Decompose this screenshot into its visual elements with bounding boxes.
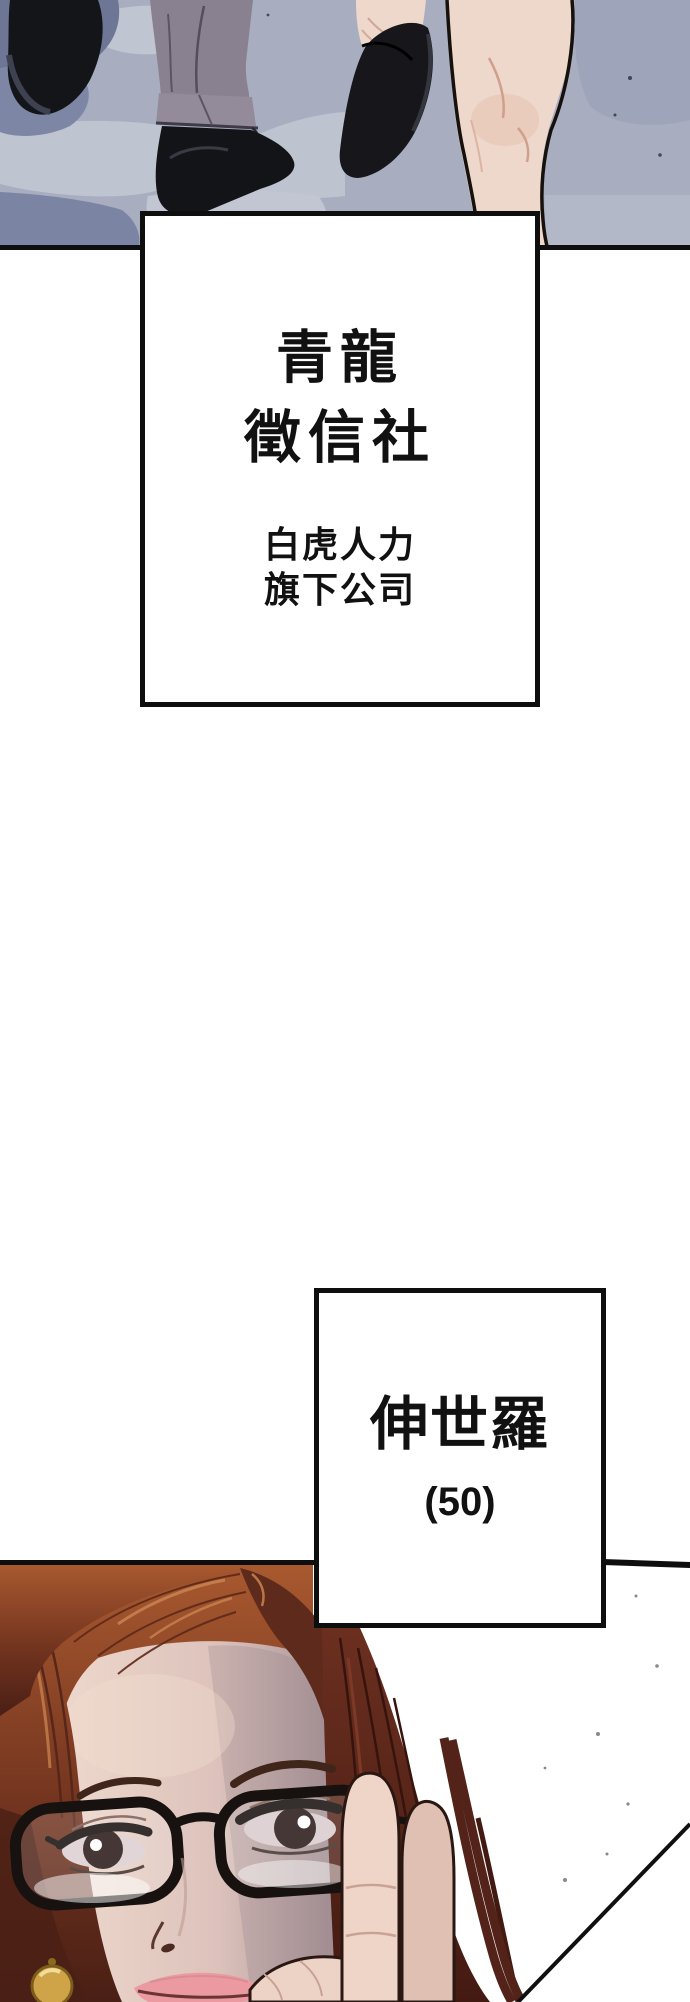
- company-name-line1: 青龍: [145, 318, 535, 398]
- company-name-line2: 徵信社: [145, 398, 535, 478]
- company-name: 青龍 徵信社: [145, 318, 535, 478]
- character-age: (50): [319, 1478, 601, 1526]
- bottom-panel-top-border-left: [0, 1560, 317, 1565]
- comic-page: 青龍 徵信社 白虎人力 旗下公司 伸世羅 (50): [0, 0, 690, 2002]
- company-subtitle-line2: 旗下公司: [145, 567, 535, 612]
- company-subtitle: 白虎人力 旗下公司: [145, 522, 535, 612]
- character-name-box: 伸世羅 (50): [314, 1288, 606, 1628]
- character-name: 伸世羅: [319, 1390, 601, 1460]
- company-sign-box: 青龍 徵信社 白虎人力 旗下公司: [140, 211, 540, 707]
- mans-trouser-leg: [150, 0, 258, 145]
- company-subtitle-line1: 白虎人力: [145, 522, 535, 567]
